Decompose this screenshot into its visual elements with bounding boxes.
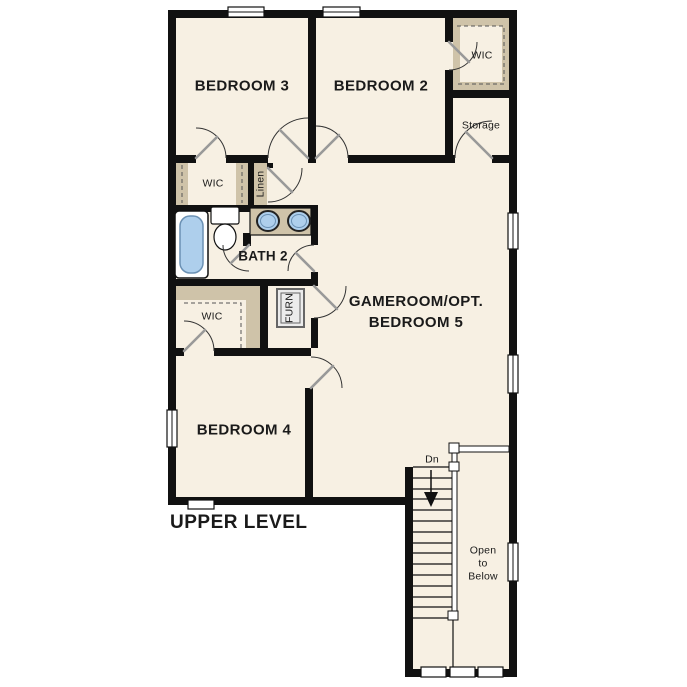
label-open-to-below: Open to Below — [468, 544, 498, 583]
window-bedroom4-south — [188, 500, 214, 509]
wall-bath-south — [176, 279, 318, 286]
label-linen: Linen — [254, 171, 269, 198]
wall-bedroom2-wic-a — [445, 18, 453, 42]
toilet-bowl — [214, 224, 236, 250]
wall-bedroom4-east — [305, 388, 313, 497]
wall-hall-north-b — [226, 155, 268, 163]
floorplan-drawing — [0, 0, 687, 687]
label-stairs-dn: Dn — [425, 453, 439, 468]
wall-bedroom4-north — [214, 348, 311, 356]
floor-areas — [176, 18, 509, 669]
window-stair-south-2 — [450, 667, 475, 677]
railing-horizontal — [452, 446, 509, 452]
label-wic-left: WIC — [202, 177, 223, 192]
railing-post-bottom — [448, 611, 458, 620]
floorplan-upper-level: BEDROOM 3 BEDROOM 2 WIC Storage WIC Line… — [0, 0, 687, 687]
window-stair-south-1 — [421, 667, 446, 677]
label-bedroom2: BEDROOM 2 — [334, 76, 428, 97]
wall-furn-east — [311, 318, 318, 348]
railing-post-top — [449, 443, 459, 453]
window-stair-south-3 — [478, 667, 503, 677]
label-bedroom3: BEDROOM 3 — [195, 76, 289, 97]
wall-hall-north-a — [176, 155, 196, 163]
label-furn: FURN — [283, 293, 298, 323]
wall-bath-east-a — [311, 205, 318, 245]
label-storage: Storage — [462, 119, 500, 134]
wic-left-shelf-west — [176, 163, 188, 205]
railing-vertical — [452, 453, 457, 613]
wall-wicmid-south-stub — [176, 348, 184, 356]
bathtub — [180, 216, 203, 273]
wall-wic-storage-divider — [445, 90, 509, 98]
wall-storage-south-stub — [492, 155, 509, 163]
wall-bedroom2-3-divider — [308, 18, 316, 163]
wic-left-shelf-east — [236, 163, 248, 205]
wic-mid-shelf-east — [246, 300, 260, 348]
wall-gameroom-north — [348, 155, 455, 163]
label-gameroom: GAMEROOM/OPT. BEDROOM 5 — [349, 291, 483, 333]
label-bath2: BATH 2 — [238, 248, 288, 267]
wall-storage-left — [445, 98, 453, 155]
label-wic-mid: WIC — [201, 310, 222, 325]
wic-mid-shelf-north — [176, 286, 260, 300]
label-bedroom4: BEDROOM 4 — [197, 420, 291, 441]
toilet-tank — [211, 207, 239, 224]
wall-wic-furn-divider — [260, 286, 268, 356]
wall-stairwell-left — [405, 467, 413, 677]
plan-title: UPPER LEVEL — [170, 512, 307, 534]
railing-post-mid — [449, 462, 459, 471]
label-wic-top-right: WIC — [471, 49, 492, 64]
